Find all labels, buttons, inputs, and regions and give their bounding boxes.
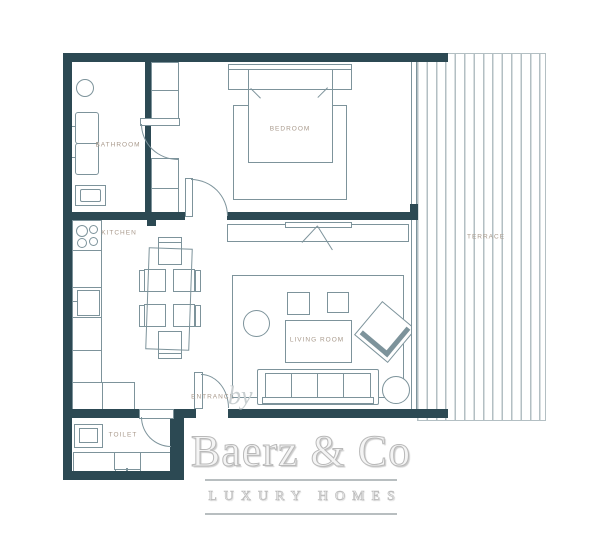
sofa — [257, 369, 379, 405]
wall-bedroom-living — [227, 212, 418, 220]
closet-cell — [151, 188, 179, 215]
living-room-label: LIVING ROOM — [290, 337, 344, 344]
sofa-base — [262, 397, 374, 404]
sofa-cushion — [317, 373, 345, 399]
hall-closet-cell — [102, 382, 135, 410]
bed-sheet-line — [249, 89, 332, 90]
wall-toilet-right — [170, 409, 184, 480]
kitchen-faucet — [71, 301, 78, 302]
sofa-cushion — [291, 373, 319, 399]
dining-chair-back — [158, 353, 182, 359]
kitchen-counter-cell — [72, 250, 102, 289]
washbasin — [75, 112, 99, 144]
wall-stub-right — [410, 204, 418, 220]
dining-table — [145, 247, 193, 350]
wall-bathroom-kitchen — [63, 212, 185, 220]
bed — [248, 69, 333, 163]
terrace-label: TERRACE — [467, 234, 505, 241]
glass-wall — [411, 62, 417, 409]
sofa-cushion — [265, 373, 293, 399]
bathroom-toilet — [75, 185, 106, 206]
wall-top — [63, 53, 448, 62]
toilet-sink — [74, 424, 103, 448]
bathroom-toilet-bowl — [80, 189, 101, 202]
dining-chair-back — [195, 270, 201, 292]
hall-closet-cell — [72, 382, 104, 410]
dining-chair-back — [195, 305, 201, 327]
watermark-tagline: LUXURY HOMES — [208, 489, 402, 505]
watermark-by: by — [228, 381, 253, 411]
sofa-cushion — [343, 373, 371, 399]
burner — [77, 238, 87, 248]
bathroom-label: BATHROOM — [95, 142, 140, 149]
watermark-rule-bottom — [205, 513, 397, 515]
toilet-label: TOILET — [109, 432, 138, 439]
burner — [76, 225, 88, 237]
floor-plan: BATHROOM BEDROOM KITCHEN LIVING ROOM TOI… — [0, 0, 600, 535]
wall-toilet-bottom — [63, 471, 184, 480]
closet-cell — [151, 158, 179, 190]
bedroom-door-swing — [191, 179, 228, 216]
kitchen-label: KITCHEN — [101, 230, 137, 237]
burner — [89, 225, 98, 234]
burner — [89, 237, 98, 246]
stove — [72, 220, 102, 252]
closet-cell — [151, 62, 179, 92]
watermark-brand: Baerz & Co — [191, 426, 411, 477]
kitchen-sink — [77, 290, 100, 316]
side-table-round-left — [243, 310, 270, 337]
kitchen-counter-cell — [72, 317, 102, 352]
bathroom-stool — [76, 79, 94, 97]
toilet-sink-basin — [79, 428, 98, 443]
wall-entry-stub — [184, 409, 196, 418]
bedroom-label: BEDROOM — [270, 126, 311, 133]
wall-stub-kitchen — [147, 220, 156, 226]
kitchen-counter-cell — [72, 350, 102, 384]
toilet-door-swing — [141, 417, 171, 447]
wall-bottom-left — [63, 409, 140, 418]
entrance-door-swing — [201, 374, 229, 408]
wall-bottom-right — [228, 409, 448, 418]
pouf-left — [287, 292, 310, 315]
pouf-right — [327, 292, 349, 313]
side-table-round-right — [382, 376, 410, 404]
watermark-rule-top — [205, 479, 397, 481]
